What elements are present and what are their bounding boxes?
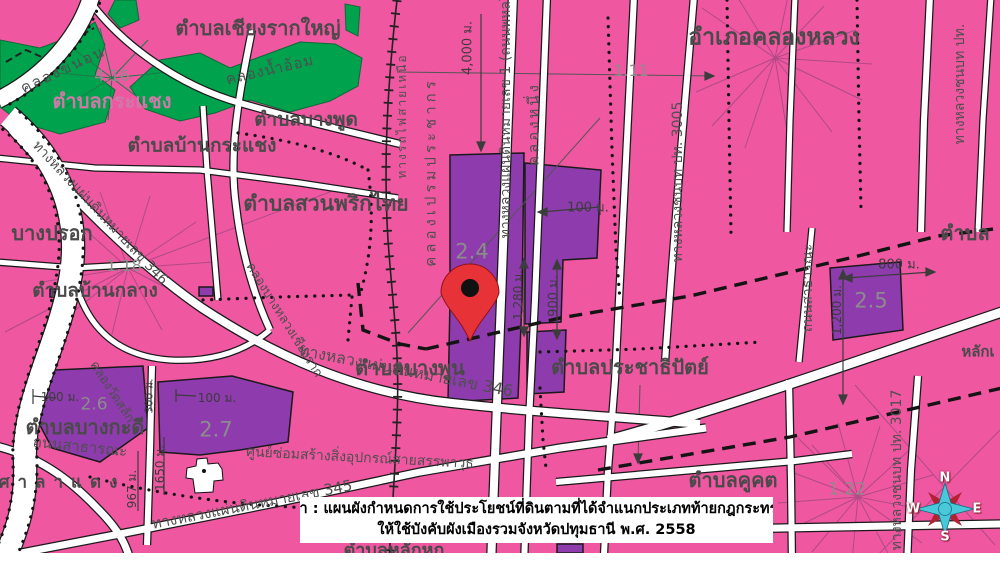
- measure-100m-z27: 100 ม.: [198, 392, 236, 404]
- measure-1200m: 1,200 ม.: [831, 285, 843, 335]
- zone-number-2-6: 2.6: [80, 397, 107, 414]
- zone-number-1-11: 1.11: [613, 63, 649, 79]
- measure-100m-z26: 100 ม.: [41, 391, 79, 403]
- zone-number-2-5: 2.5: [854, 291, 887, 312]
- zoning-map: ตำบลเชียงรากใหญ่ ตำบลกระแชง ตำบลบางพูด ต…: [0, 0, 1000, 563]
- label-tambon-ban-krachaeng: ตำบลบ้านกระแชง: [128, 137, 277, 156]
- compass-north-label: N: [940, 471, 951, 486]
- measure-1650m: 1650 ม.: [154, 445, 166, 491]
- measure-100m-center: 100 ม.: [567, 202, 609, 215]
- label-khlong-prem-prachakon: คลองเปรมประชากร: [424, 77, 439, 267]
- measure-967m: 967 ม.: [126, 470, 138, 508]
- label-rural-road-pt-partial: ทางหลวงชนบท ปท.: [953, 24, 967, 145]
- caption-line-1: ที่มา : แผนผังกำหนดการใช้ประโยชน์ที่ดินต…: [300, 499, 773, 520]
- compass-west-label: W: [906, 502, 920, 517]
- label-bang-prok: บางปรอก: [11, 223, 92, 243]
- label-tambon-prachathipat: ตำบลประชาธิปัตย์: [551, 357, 709, 377]
- label-public-road-e: ถนนสาธารณะ: [801, 244, 815, 332]
- label-khlong-nueng: คลองหนึ่ง: [527, 82, 542, 166]
- zone-number-2-7: 2.7: [199, 420, 232, 441]
- label-railway-north: ทางรถไฟสายเหนือ: [396, 53, 408, 178]
- label-highway-1-phahonyothin: ทางหลวงแผ่นดินหมายเลข 1 (ถนนพหลโยธิน): [499, 0, 513, 238]
- measure-300m: 300 ม.: [144, 378, 155, 413]
- label-tambon-suan-phrik-thai: ตำบลสวนพริกไทย: [243, 194, 408, 215]
- source-caption-box: ที่มา : แผนผังกำหนดการใช้ประโยชน์ที่ดินต…: [300, 497, 773, 543]
- label-lak-right-partial: หลักเ: [961, 345, 994, 360]
- label-tambon-bang-pud: ตำบลบางพูด: [254, 111, 358, 130]
- caption-line-2: ให้ใช้บังคับผังเมืองรวมจังหวัดปทุมธานี พ…: [377, 520, 695, 541]
- label-tambon-chiang-rak-yai: ตำบลเชียงรากใหญ่: [175, 18, 340, 38]
- measure-900m: 900 ม.: [548, 275, 561, 317]
- measure-4000m: 4,000 ม.: [462, 21, 475, 75]
- zone-number-2-4: 2.4: [455, 242, 488, 263]
- label-tambon-ban-klang: ตำบลบ้านกลาง: [32, 282, 158, 301]
- label-sala-daeng: ศาลาแดง: [0, 475, 125, 492]
- zone-number-1-22: 1.22: [828, 482, 866, 499]
- compass-south-label: S: [940, 530, 949, 545]
- label-rural-road-3017: ทางหลวงชนบท ปท. 3017: [890, 390, 904, 551]
- zone-number-4-16: 4.16: [94, 68, 130, 84]
- label-tambon-right-partial: ตำบล: [940, 223, 989, 243]
- label-amphoe-khlong-luang: อำเภอคลองหลวง: [688, 27, 860, 50]
- label-tambon-khu-khot: ตำบลคูคต: [689, 470, 778, 490]
- bottom-margin: [0, 553, 1000, 563]
- measure-1280m: 1,280 ม.: [512, 270, 524, 320]
- label-tambon-krachaeng: ตำบลกระแชง: [53, 91, 172, 111]
- compass-east-label: E: [973, 502, 982, 517]
- label-rural-road-3005: ทางหลวงชนบท ปท. 3005: [671, 102, 685, 263]
- measure-800m: 800 ม.: [878, 259, 920, 272]
